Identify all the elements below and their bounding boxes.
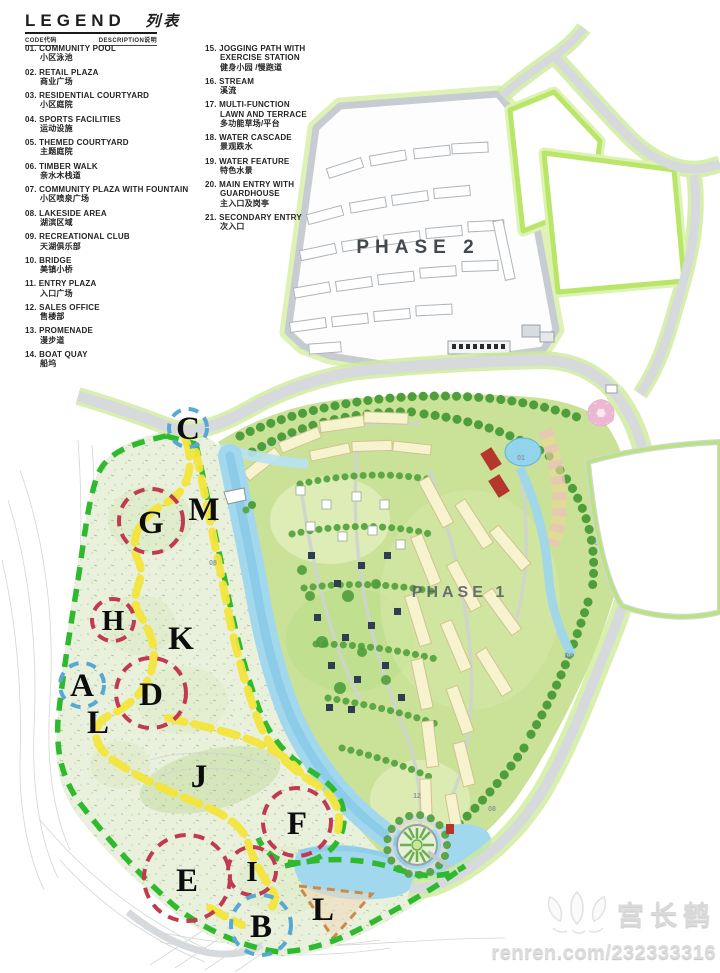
svg-text:G: G [138, 505, 164, 541]
svg-text:F: F [287, 806, 307, 842]
water-feature-structure [446, 824, 454, 834]
svg-text:08: 08 [209, 560, 217, 567]
svg-text:08: 08 [488, 806, 496, 813]
legend-item-14: 14. BOAT QUAY船坞 [25, 350, 200, 369]
legend-column-2: 15. JOGGING PATH WITHEXERCISE STATION健身小… [205, 44, 365, 237]
legend-item-08: 08. LAKESIDE AREA湖滨区域 [25, 209, 200, 228]
watermark-author: 宫长鹤 [617, 894, 716, 933]
svg-text:L: L [312, 892, 334, 928]
watermark-logo-icon [545, 890, 609, 936]
legend-title: LEGEND 列表 [25, 10, 157, 34]
legend-item-01: 01. COMMUNITY POOL小区泳池 [25, 44, 200, 63]
legend-item-15: 15. JOGGING PATH WITHEXERCISE STATION健身小… [205, 44, 365, 72]
map-marker-l1: L [87, 705, 109, 741]
phase2-label: PHASE 2 [356, 237, 479, 258]
svg-text:C: C [176, 411, 200, 447]
legend-column-1: 01. COMMUNITY POOL小区泳池 02. RETAIL PLAZA商… [25, 44, 200, 373]
legend-item-07: 07. COMMUNITY PLAZA WITH FOUNTAIN小区喷泉广场 [25, 185, 200, 204]
legend-item-17: 17. MULTI-FUNCTIONLAWN AND TERRACE多功能草场/… [205, 100, 365, 128]
legend: LEGEND 列表 CODE代码 DESCRIPTION说明 01. COMMU… [25, 10, 360, 58]
map-marker-l2: L [312, 892, 334, 928]
legend-item-19: 19. WATER FEATURE特色水景 [205, 157, 365, 176]
svg-text:D: D [139, 677, 163, 713]
legend-item-04: 04. SPORTS FACILITIES运动设施 [25, 115, 200, 134]
svg-text:01: 01 [517, 455, 525, 462]
legend-item-09: 09. RECREATIONAL CLUB天湖俱乐部 [25, 232, 200, 251]
master-plan-page: 08 08 D9 12 01 PHASE 2 PHASE 1 C G M H K… [0, 0, 720, 973]
legend-item-12: 12. SALES OFFICE售楼部 [25, 303, 200, 322]
legend-item-02: 02. RETAIL PLAZA商业广场 [25, 68, 200, 87]
watermark: 宫长鹤 renren.com/232333316 [456, 890, 716, 965]
svg-text:M: M [188, 492, 219, 528]
legend-item-20: 20. MAIN ENTRY WITHGUARDHOUSE主入口及岗亭 [205, 180, 365, 208]
svg-text:L: L [87, 705, 109, 741]
phase1-label: PHASE 1 [412, 584, 508, 601]
svg-text:B: B [250, 909, 272, 945]
map-marker-j: J [191, 759, 208, 795]
svg-text:K: K [168, 621, 194, 657]
legend-item-05: 05. THEMED COURTYARD主题庭院 [25, 138, 200, 157]
phase2-parking [448, 341, 510, 354]
svg-text:J: J [191, 759, 208, 795]
legend-item-06: 06. TIMBER WALK亲水木栈道 [25, 162, 200, 181]
legend-item-10: 10. BRIDGE美镇小桥 [25, 256, 200, 275]
legend-item-16: 16. STREAM溪流 [205, 77, 365, 96]
legend-item-13: 13. PROMENADE漫步道 [25, 326, 200, 345]
legend-item-18: 18. WATER CASCADE景观跌水 [205, 133, 365, 152]
legend-item-03: 03. RESIDENTIAL COURTYARD小区庭院 [25, 91, 200, 110]
legend-item-11: 11. ENTRY PLAZA入口广场 [25, 279, 200, 298]
svg-text:H: H [102, 605, 125, 637]
legend-item-21: 21. SECONDARY ENTRY次入口 [205, 213, 365, 232]
svg-text:D9: D9 [565, 653, 574, 660]
svg-text:12: 12 [413, 793, 421, 800]
watermark-url: renren.com/232333316 [456, 942, 716, 965]
guardhouse [606, 385, 617, 393]
svg-text:A: A [70, 668, 94, 704]
map-marker-k: K [168, 621, 194, 657]
svg-text:E: E [176, 863, 198, 899]
svg-text:I: I [246, 856, 257, 888]
map-marker-m: M [188, 492, 219, 528]
